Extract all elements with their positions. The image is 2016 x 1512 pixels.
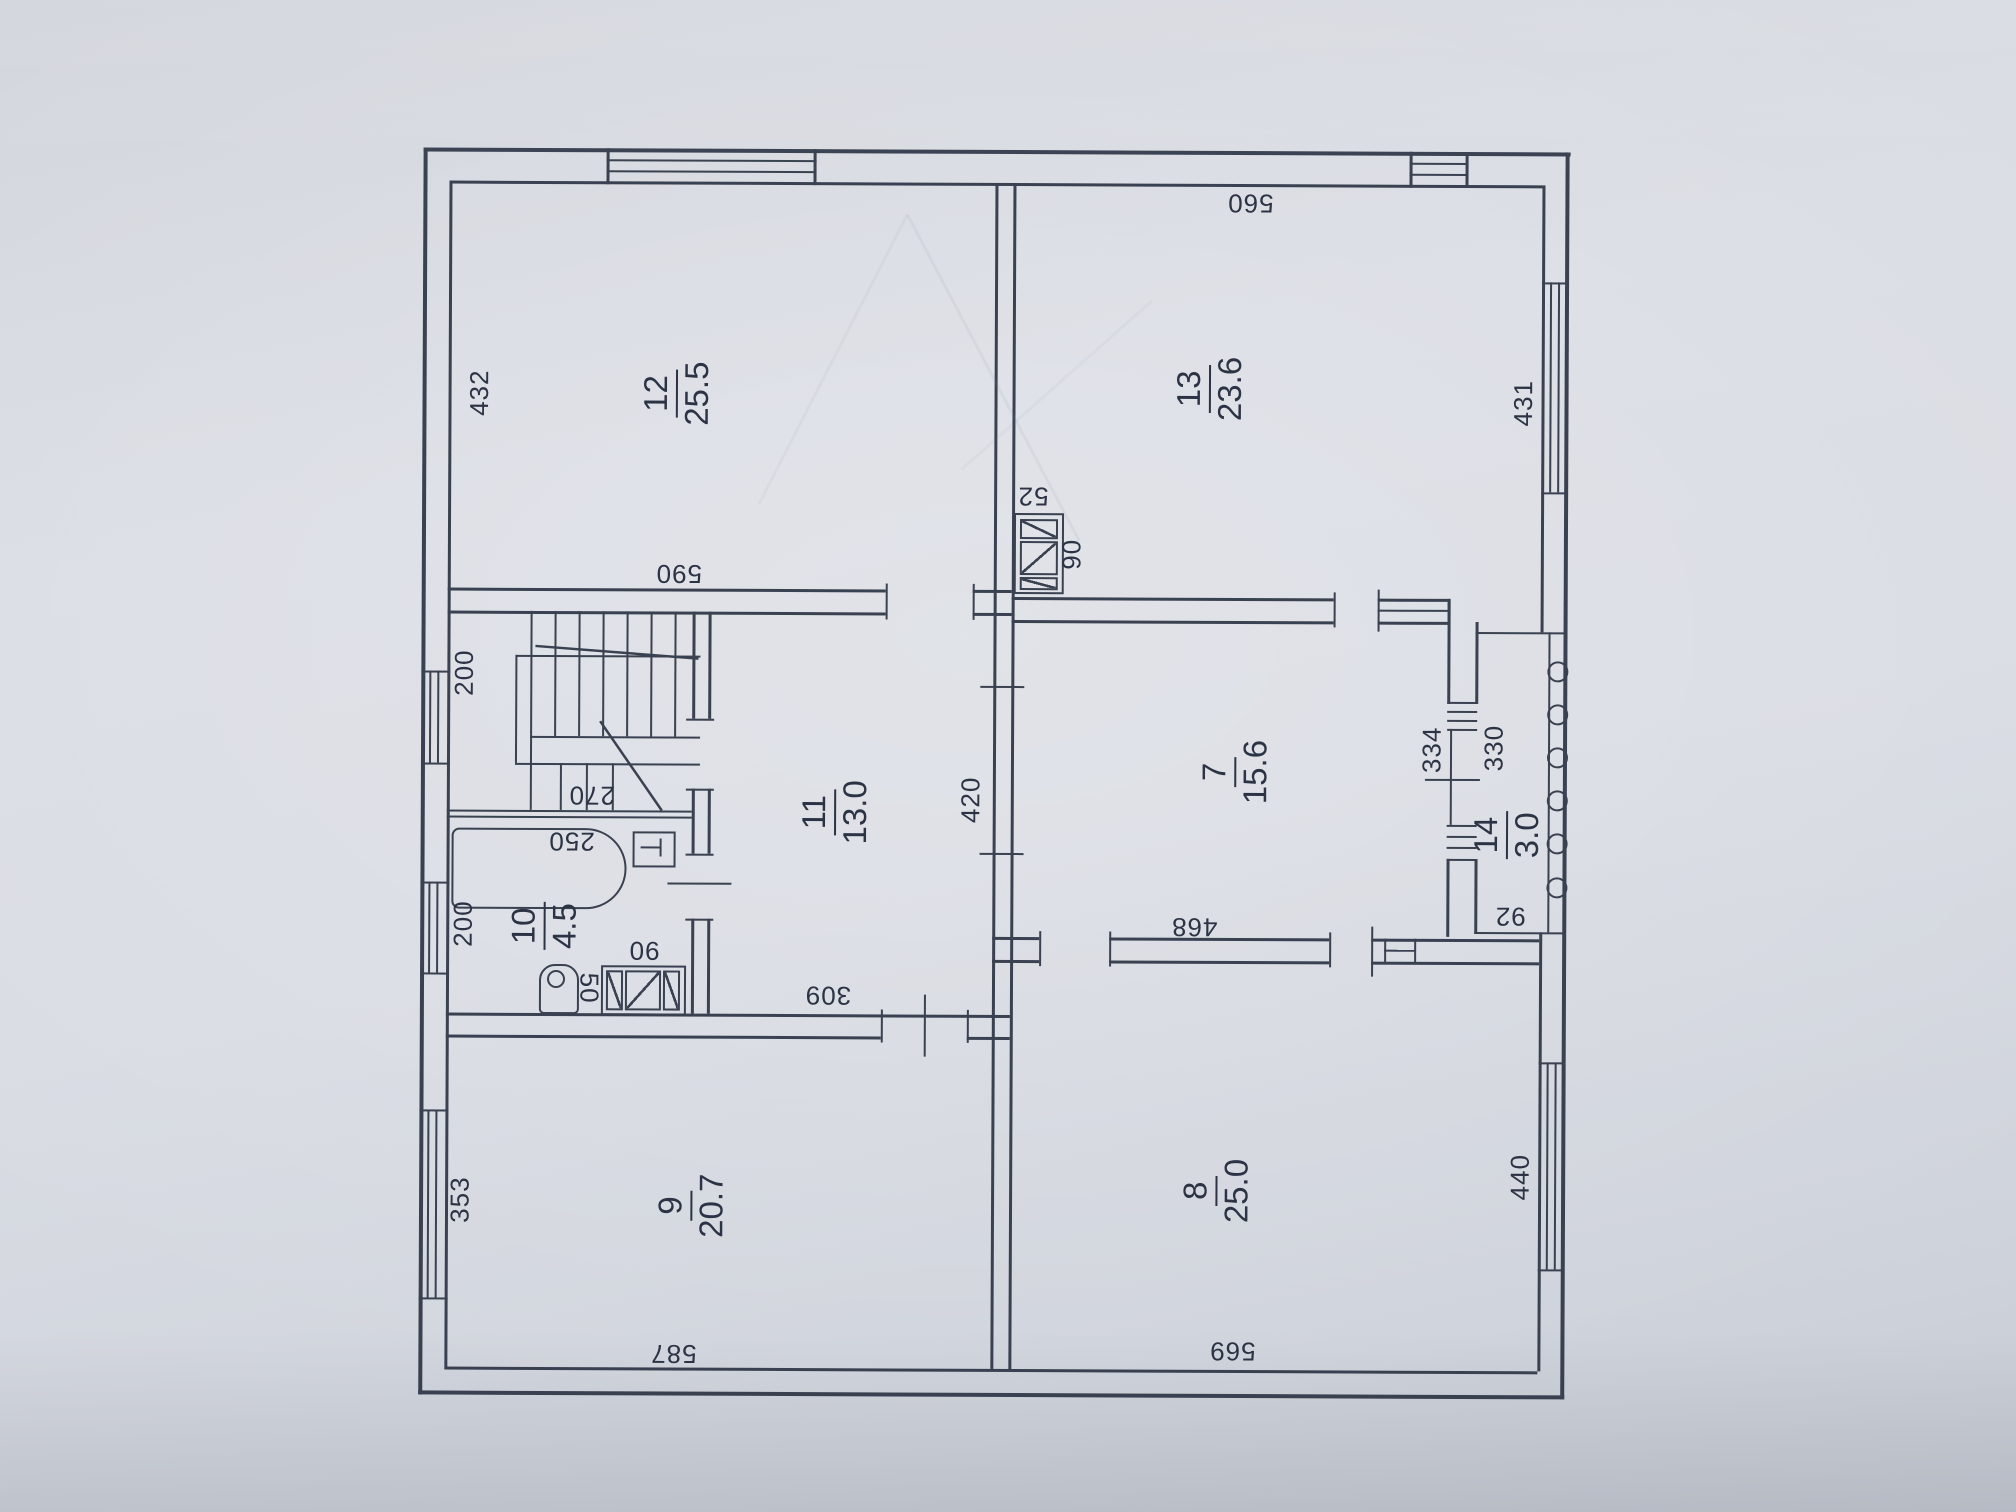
sink xyxy=(633,831,676,867)
window-left-room9-pane2 xyxy=(435,1110,438,1298)
door-7-8-right-jamb-a xyxy=(1329,932,1331,967)
dim-balcony-width: 92 xyxy=(1495,901,1526,932)
wall-room13-bottom-a xyxy=(1012,597,1334,601)
wall-exterior-bottom-outer xyxy=(418,1390,1564,1399)
window-top-room13-pane2 xyxy=(1410,174,1468,176)
dim-room9-bottom: 587 xyxy=(650,1338,697,1369)
tick-wall-7-14 xyxy=(1425,779,1480,781)
window-right-room13-cap-bottom xyxy=(1541,492,1567,494)
dim-room8-bottom: 569 xyxy=(1209,1335,1256,1366)
window-top-room13-cap-right xyxy=(1465,152,1468,188)
window-left-bath-cap-bottom xyxy=(420,972,449,974)
room-9-area: 20.7 xyxy=(692,1168,729,1244)
wall-7-14-lower-a xyxy=(1446,859,1449,937)
wall-stairs-bath-bottom xyxy=(447,816,692,819)
door-11-9-jamb-right xyxy=(967,1010,969,1043)
wall-room13-bottom-inner-a xyxy=(1012,620,1334,624)
balcony-baluster-5 xyxy=(1547,833,1568,854)
wall-7-14-upper-a xyxy=(1447,599,1450,704)
room-7-label: 7 15.6 xyxy=(1197,734,1273,811)
door-12-11-jamb-right xyxy=(973,584,975,620)
door-bath-leaf xyxy=(667,883,731,885)
stair-tread-3 xyxy=(602,611,605,736)
wall-7-14-lower-b xyxy=(1474,859,1477,934)
door-12-11-jamb-left xyxy=(886,583,888,619)
wall-center-vertical-right xyxy=(1008,183,1016,1369)
balcony-baluster-3 xyxy=(1547,747,1568,768)
window-top-room13-pane1 xyxy=(1410,163,1468,165)
vent-flue-bath-2 xyxy=(625,970,661,1010)
dim-vent-main-h: 90 xyxy=(1056,539,1087,570)
room-12-label: 12 25.5 xyxy=(639,355,715,432)
window-top-room13-cap-left xyxy=(1409,152,1412,188)
window-left-room9-pane1 xyxy=(427,1109,430,1297)
room-13-label: 13 23.6 xyxy=(1172,351,1248,428)
window-right-room8-cap-top xyxy=(1539,1062,1565,1064)
wall-exterior-right-inner-upper xyxy=(1541,185,1546,632)
room-11-number: 11 xyxy=(797,789,836,835)
dim-stair-hall: 200 xyxy=(449,649,480,696)
dim-room13-side: 431 xyxy=(1508,380,1539,427)
door-7-8-left-jamb-b xyxy=(1109,931,1111,966)
balcony-baluster-2 xyxy=(1547,704,1568,725)
wall-room12-bottom-b xyxy=(973,590,1012,593)
room-10-number: 10 xyxy=(507,901,546,950)
window-left-stairs-pane2 xyxy=(437,671,439,763)
door-bath-jamb-bottom xyxy=(685,919,713,921)
room-7-number: 7 xyxy=(1197,757,1236,788)
wall-hall-right-inner-b xyxy=(708,789,711,854)
stair-flight-left-edge xyxy=(530,611,533,810)
stair-tread-6 xyxy=(674,612,677,737)
wall-7-14-upper-b xyxy=(1475,622,1478,704)
room-13-area: 23.6 xyxy=(1210,351,1247,427)
window-left-stairs-cap-top xyxy=(421,670,450,672)
vent-flue-main-2 xyxy=(1020,541,1058,575)
toilet-flush-icon xyxy=(547,970,565,988)
wall-hall-right-c xyxy=(691,919,694,1014)
stair-well-left xyxy=(515,655,517,763)
wall-room7-bottom-a xyxy=(992,937,1039,940)
wall-hall-right-inner-c xyxy=(707,919,710,1014)
wall-hall-right-a xyxy=(692,612,695,719)
dim-room8-side: 440 xyxy=(1505,1154,1536,1201)
dim-bath-wall: 200 xyxy=(448,900,479,947)
window-left-stairs-pane1 xyxy=(429,670,431,762)
window-top-room12-pane2 xyxy=(607,170,817,173)
door-11-9-tick xyxy=(924,995,926,1057)
wall-room13-bottom-b xyxy=(1378,599,1448,602)
stair-tread-4 xyxy=(626,611,629,736)
dim-bath-vent-w: 90 xyxy=(629,935,660,966)
stair-lower-tread-1 xyxy=(560,763,562,810)
dim-room9-side: 353 xyxy=(444,1176,475,1223)
sink-tap-stem-icon xyxy=(641,846,661,848)
tick-wall-11-7-lower xyxy=(980,853,1024,855)
window-left-bath-pane1 xyxy=(428,881,430,972)
wall-hall-right-b xyxy=(692,789,695,854)
room-12-area: 25.5 xyxy=(677,355,714,431)
stair-well-bottom xyxy=(515,763,700,766)
door-7-8-left-jamb-a xyxy=(1039,931,1041,966)
window-right-room13-cap-top xyxy=(1542,282,1568,284)
window-right-room13-pane2 xyxy=(1557,282,1560,492)
vent-flue-main-1 xyxy=(1020,519,1058,539)
stair-well-top xyxy=(515,655,700,658)
window-internal-13-7-pane xyxy=(1378,610,1448,612)
wall-room11-bottom-inner-b xyxy=(967,1037,1010,1040)
dim-room7-side: 334 xyxy=(1416,727,1447,774)
vent-flue-bath-1 xyxy=(606,970,623,1010)
wall-hall-right-inner-a xyxy=(708,612,711,719)
dim-vent-main-w: 52 xyxy=(1018,481,1049,512)
vent-78-pane xyxy=(1384,950,1415,952)
wall-room13-bottom-inner-b xyxy=(1378,622,1448,625)
vent-flue-main-3 xyxy=(1020,577,1058,590)
room-14-area: 3.0 xyxy=(1508,806,1545,864)
stair-tread-5 xyxy=(650,611,653,736)
window-right-room8-pane2 xyxy=(1554,1062,1557,1269)
window-top-room12-cap-right xyxy=(813,149,816,185)
dim-room7-bottom: 468 xyxy=(1171,911,1218,942)
wall-room12-bottom-inner-a xyxy=(448,611,886,616)
window-top-room12-cap-left xyxy=(606,148,609,184)
tick-wall-11-7-upper xyxy=(980,686,1024,688)
wall-center-vertical-left xyxy=(990,183,998,1369)
balcony-baluster-6 xyxy=(1546,877,1567,898)
room-10-area: 4.5 xyxy=(545,897,582,955)
room-8-area: 25.0 xyxy=(1217,1153,1254,1229)
window-right-room13-pane1 xyxy=(1549,282,1552,492)
window-top-room12-pane1 xyxy=(607,159,817,162)
dim-room11-side: 420 xyxy=(955,777,986,824)
dim-bath-vent-h: 50 xyxy=(573,973,604,1004)
window-left-bath-pane2 xyxy=(436,882,438,973)
door-13-7-jamb-left xyxy=(1334,592,1336,627)
window-left-stairs-cap-bottom xyxy=(421,762,450,764)
balcony-baluster-4 xyxy=(1547,790,1568,811)
window-7-14-upper-pane1 xyxy=(1447,711,1477,713)
dim-room13-top: 560 xyxy=(1227,187,1274,218)
room-12-number: 12 xyxy=(639,369,678,418)
vent-flue-bath-3 xyxy=(663,970,680,1010)
wall-balcony-bottom xyxy=(1474,932,1564,934)
wall-exterior-right-outer xyxy=(1560,152,1569,1399)
dim-stair-flight: 270 xyxy=(569,780,616,811)
window-left-room9-cap-top xyxy=(419,1109,448,1111)
window-left-room9-cap-bottom xyxy=(419,1297,448,1299)
room-7-area: 15.6 xyxy=(1236,734,1273,810)
photo-paper: 12 25.5 13 23.6 11 13.0 7 15.6 14 3.0 10… xyxy=(0,0,2016,1512)
dim-room12-side: 432 xyxy=(464,369,495,416)
floor-plan: 12 25.5 13 23.6 11 13.0 7 15.6 14 3.0 10… xyxy=(0,0,2016,1512)
wall-exterior-top-outer xyxy=(424,147,1571,156)
wall-room7-bottom-c xyxy=(1371,939,1539,943)
room-8-label: 8 25.0 xyxy=(1178,1153,1254,1230)
wall-exterior-right-inner-lower xyxy=(1537,932,1542,1371)
room-11-area: 13.0 xyxy=(836,774,873,850)
wall-room8-top-b xyxy=(1109,960,1329,964)
window-left-bath-cap-top xyxy=(420,881,449,883)
wall-room11-bottom-inner-a xyxy=(446,1035,881,1040)
stair-tread-2 xyxy=(578,611,581,736)
room-11-label: 11 13.0 xyxy=(797,774,873,851)
room-9-label: 9 20.7 xyxy=(653,1167,729,1244)
wall-room8-top-a xyxy=(992,960,1039,963)
window-right-room8-cap-bottom xyxy=(1538,1269,1564,1271)
wall-room8-top-c xyxy=(1371,962,1539,966)
room-14-number: 14 xyxy=(1469,811,1508,860)
room-9-number: 9 xyxy=(653,1190,692,1221)
dim-hall-opening: 309 xyxy=(805,980,852,1011)
window-right-room8-pane1 xyxy=(1546,1062,1549,1269)
window-7-14-upper-cap1 xyxy=(1447,702,1477,704)
door-balcony-threshold xyxy=(1450,729,1452,825)
stair-flight-bottom-edge xyxy=(530,736,700,739)
door-11-9-jamb-left xyxy=(881,1009,883,1042)
room-14-label: 14 3.0 xyxy=(1469,806,1545,864)
door-7-8-right-jamb-b xyxy=(1371,927,1373,977)
dim-balcony-side: 330 xyxy=(1478,725,1509,772)
dim-bathtub: 250 xyxy=(548,825,595,856)
room-10-label: 10 4.5 xyxy=(506,897,582,955)
stair-tread-1 xyxy=(554,611,557,736)
door-bath-jamb-top xyxy=(686,854,714,856)
room-8-number: 8 xyxy=(1178,1176,1217,1207)
room-13-number: 13 xyxy=(1172,364,1211,413)
wall-balcony-top xyxy=(1476,632,1566,634)
dim-room12-bottom: 590 xyxy=(656,558,703,589)
wall-room7-bottom-b xyxy=(1109,937,1329,941)
door-stairs-11-jamb-bottom xyxy=(686,789,714,791)
door-stairs-11-jamb-top xyxy=(686,719,714,721)
window-7-14-upper-pane2 xyxy=(1447,720,1477,722)
wall-room12-bottom-inner-b xyxy=(973,613,1012,616)
balcony-baluster-1 xyxy=(1547,661,1568,682)
